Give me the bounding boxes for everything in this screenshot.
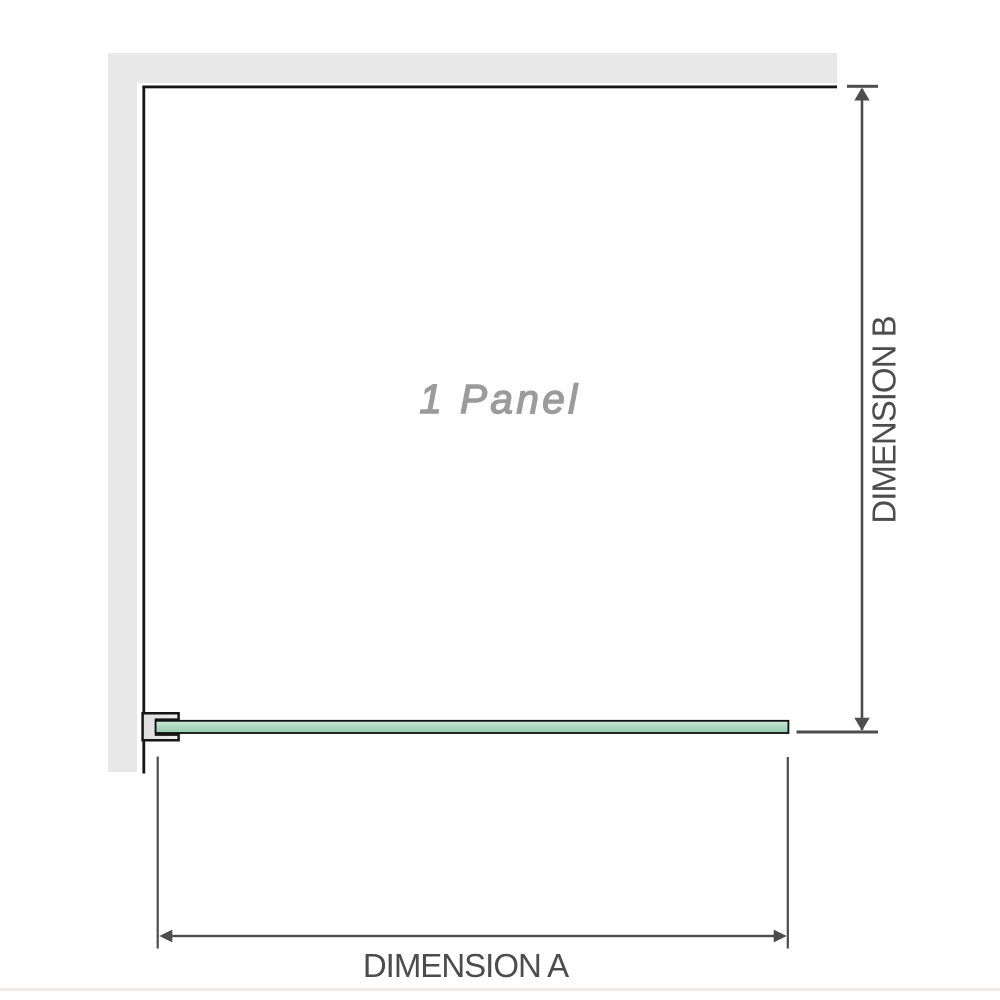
svg-text:DIMENSION B: DIMENSION B — [866, 316, 903, 523]
svg-text:DIMENSION A: DIMENSION A — [363, 947, 569, 984]
svg-text:1 Panel: 1 Panel — [419, 376, 580, 422]
